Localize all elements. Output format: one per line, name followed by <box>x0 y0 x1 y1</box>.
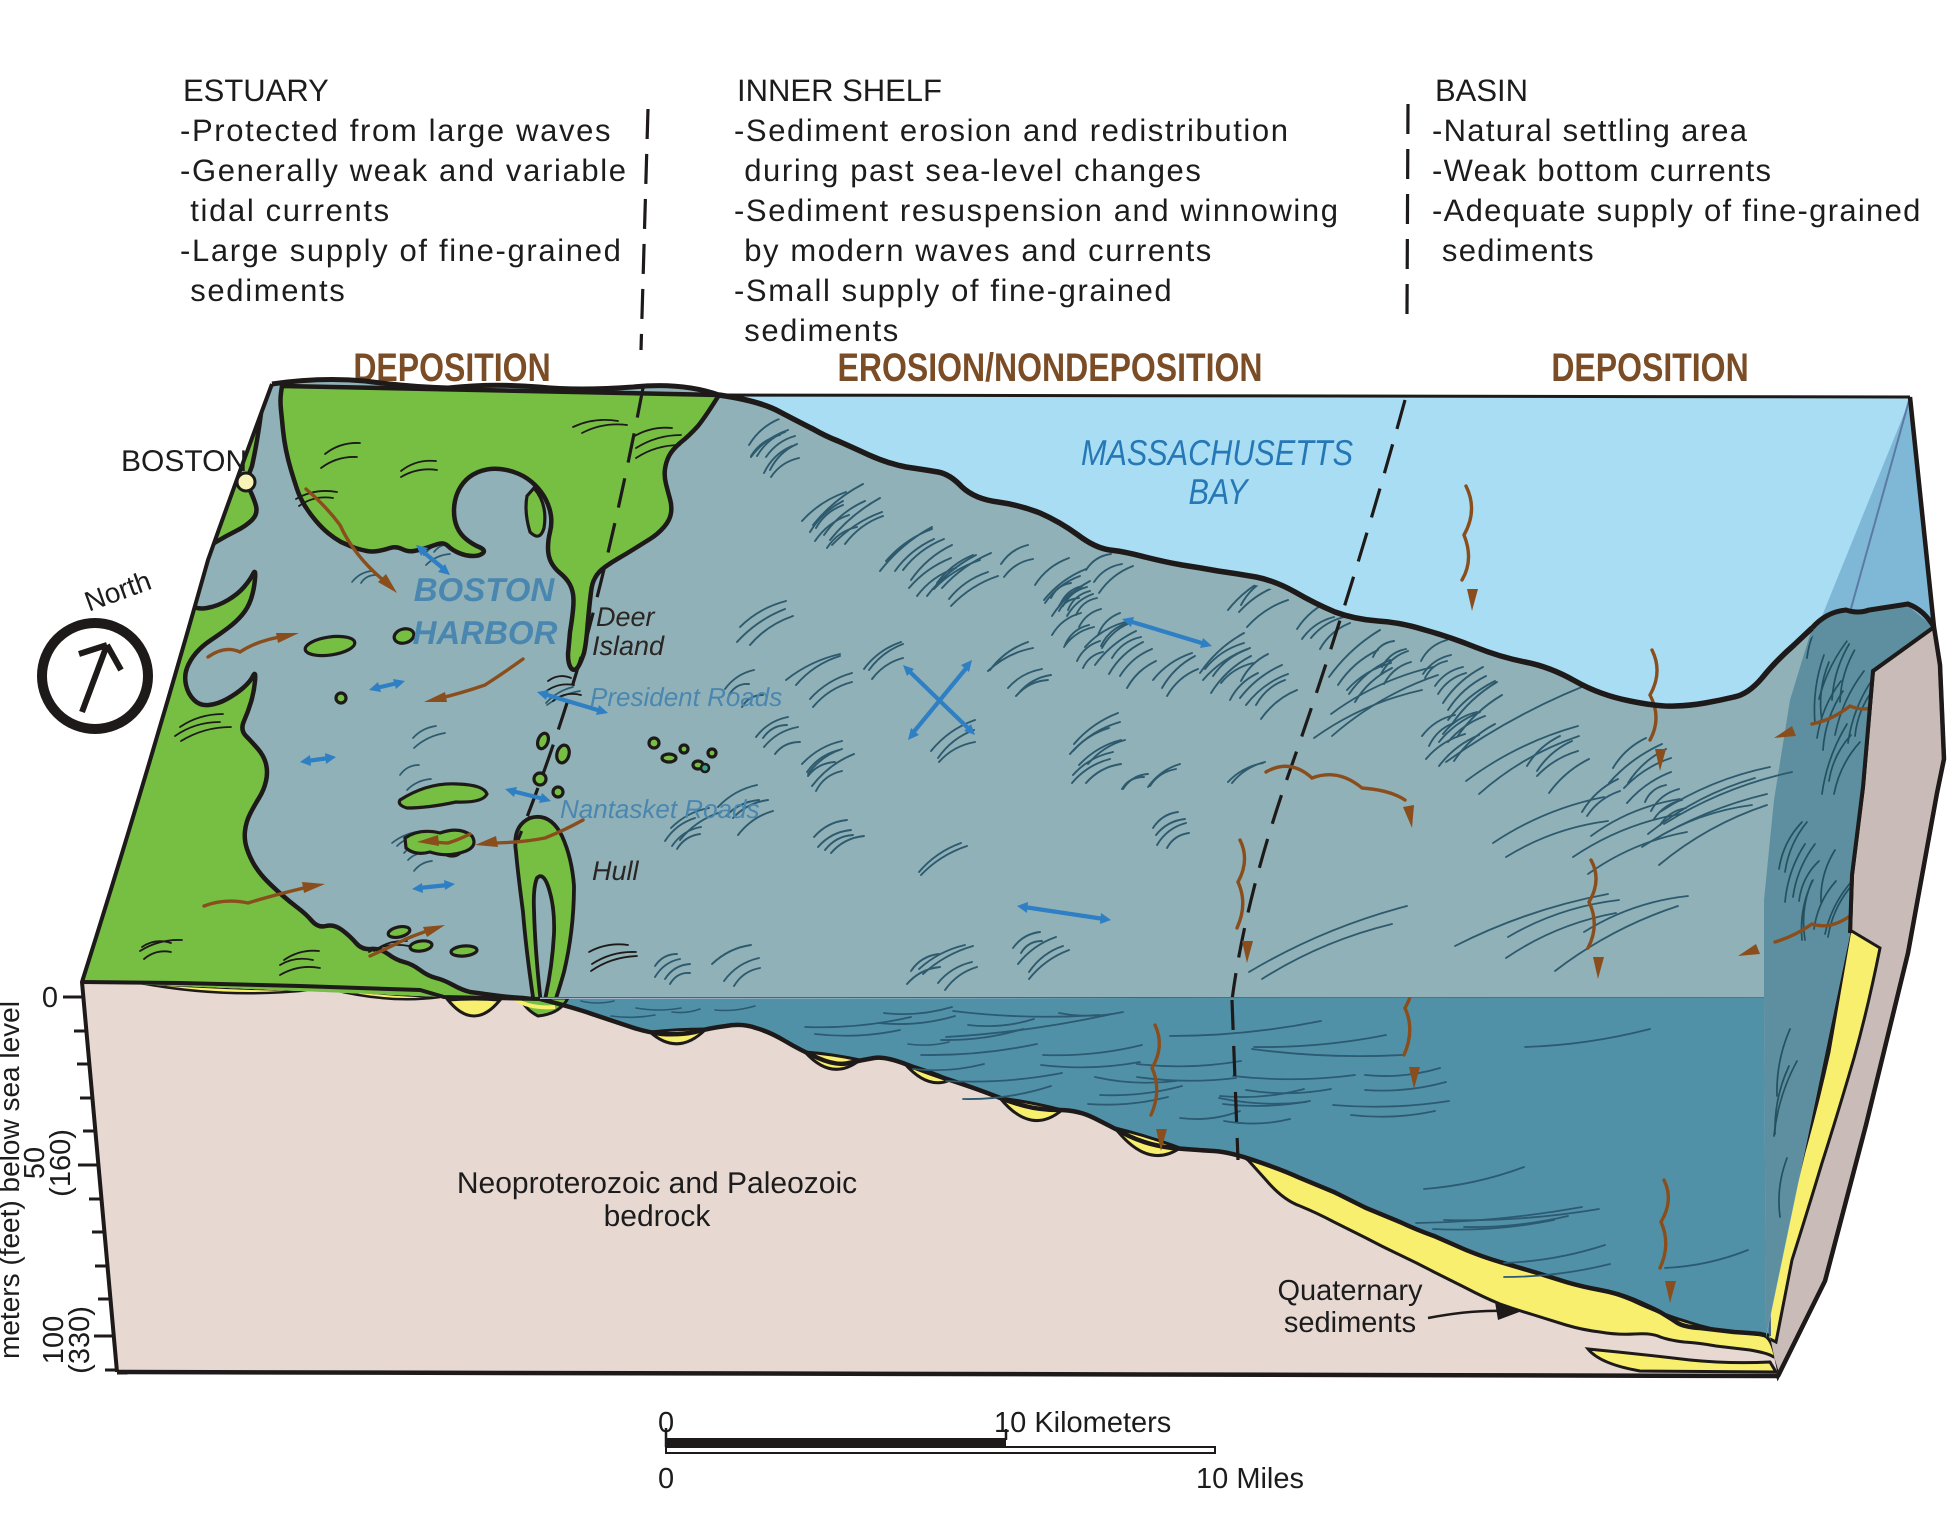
svg-text:-Weak bottom currents: -Weak bottom currents <box>1432 153 1772 188</box>
svg-text:President Roads: President Roads <box>590 682 782 712</box>
svg-text:-Natural settling area: -Natural settling area <box>1432 113 1748 148</box>
svg-text:-Sediment erosion and redistri: -Sediment erosion and redistribution <box>734 113 1290 148</box>
svg-text:0: 0 <box>42 982 58 1014</box>
svg-text:Island: Island <box>592 631 665 661</box>
svg-text:HARBOR: HARBOR <box>413 614 558 651</box>
svg-text:bedrock: bedrock <box>604 1200 712 1233</box>
svg-text:Nantasket Roads: Nantasket Roads <box>560 794 759 824</box>
svg-text:Quaternary: Quaternary <box>1277 1275 1423 1307</box>
svg-text:sediments: sediments <box>1284 1307 1416 1339</box>
svg-text:MASSACHUSETTS: MASSACHUSETTS <box>1081 432 1353 473</box>
svg-text:Hull: Hull <box>592 856 640 886</box>
svg-text:Deer: Deer <box>596 602 656 632</box>
svg-text:BAY: BAY <box>1189 471 1250 512</box>
svg-text:INNER SHELF: INNER SHELF <box>737 73 942 108</box>
svg-text:-Protected from large waves: -Protected from large waves <box>180 113 612 148</box>
svg-text:-Small supply of fine-grained: -Small supply of fine-grained <box>734 273 1173 308</box>
svg-text:0: 0 <box>658 1463 674 1495</box>
svg-text:sediments: sediments <box>180 273 346 308</box>
svg-text:during past sea-level changes: during past sea-level changes <box>734 153 1202 188</box>
svg-text:-Large supply of fine-grained: -Large supply of fine-grained <box>180 233 622 268</box>
svg-text:-Generally weak and variable: -Generally weak and variable <box>180 153 628 188</box>
svg-text:(160): (160) <box>45 1129 77 1197</box>
svg-text:(330): (330) <box>64 1306 96 1374</box>
svg-text:by modern waves and currents: by modern waves and currents <box>734 233 1213 268</box>
svg-text:ESTUARY: ESTUARY <box>183 73 329 108</box>
svg-text:BASIN: BASIN <box>1435 73 1528 108</box>
svg-text:-Sediment resuspension and win: -Sediment resuspension and winnowing <box>734 193 1340 228</box>
svg-text:Neoproterozoic and Paleozoic: Neoproterozoic and Paleozoic <box>457 1167 857 1200</box>
svg-text:-Adequate supply of fine-grain: -Adequate supply of fine-grained <box>1432 193 1922 228</box>
svg-text:sediments: sediments <box>1432 233 1595 268</box>
svg-text:10 Miles: 10 Miles <box>1196 1463 1304 1495</box>
svg-text:10 Kilometers: 10 Kilometers <box>994 1407 1171 1439</box>
svg-text:EROSION/NONDEPOSITION: EROSION/NONDEPOSITION <box>838 346 1263 390</box>
svg-text:BOSTON: BOSTON <box>414 571 556 608</box>
svg-text:DEPOSITION: DEPOSITION <box>1551 346 1748 390</box>
svg-text:tidal currents: tidal currents <box>180 193 391 228</box>
svg-text:sediments: sediments <box>734 313 900 348</box>
svg-text:BOSTON: BOSTON <box>121 445 247 478</box>
